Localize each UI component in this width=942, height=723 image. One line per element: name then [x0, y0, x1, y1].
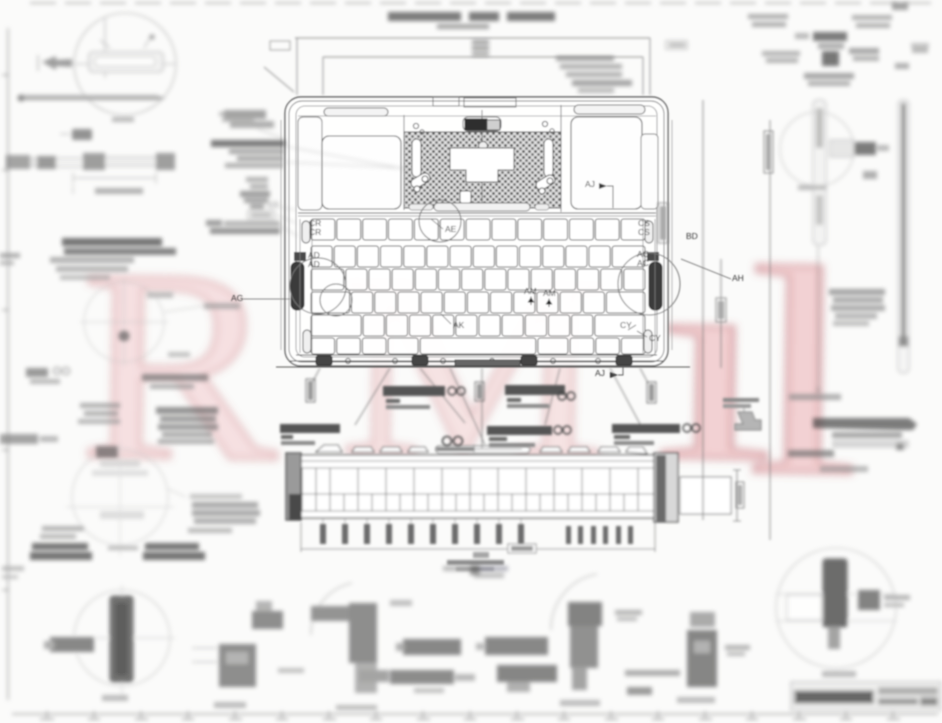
svg-text:AG: AG: [231, 293, 243, 303]
svg-text:AK: AK: [453, 320, 465, 330]
svg-text:AM: AM: [543, 288, 556, 298]
svg-text:AE: AE: [445, 224, 457, 234]
svg-text:EP: EP: [268, 201, 279, 210]
svg-text:BD: BD: [686, 231, 698, 241]
svg-text:l: l: [746, 207, 862, 539]
svg-text:AH: AH: [732, 273, 744, 283]
svg-text:AJ: AJ: [595, 368, 605, 378]
svg-text:CR: CR: [309, 227, 321, 237]
svg-text:AM: AM: [524, 286, 537, 296]
svg-text:CY: CY: [649, 333, 661, 343]
svg-text:AJ: AJ: [585, 179, 595, 189]
svg-text:AC: AC: [637, 258, 649, 268]
svg-text:AD: AD: [308, 259, 320, 269]
svg-text:CS: CS: [638, 227, 650, 237]
